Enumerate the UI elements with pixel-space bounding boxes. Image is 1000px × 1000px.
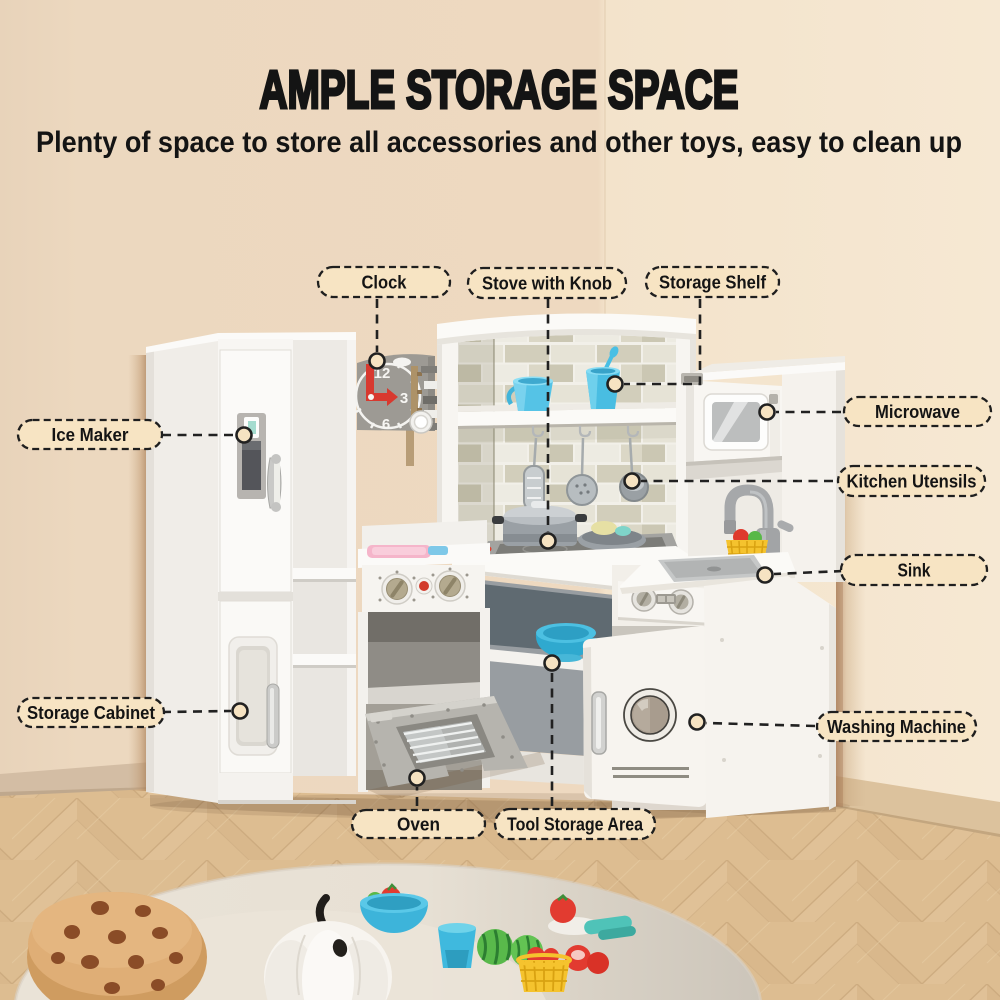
svg-text:Storage Shelf: Storage Shelf	[659, 272, 767, 293]
svg-text:Storage Cabinet: Storage Cabinet	[27, 702, 155, 723]
svg-text:Microwave: Microwave	[875, 401, 960, 422]
svg-text:6: 6	[382, 416, 390, 433]
svg-text:Sink: Sink	[898, 560, 932, 581]
svg-text:Ice Maker: Ice Maker	[52, 424, 129, 445]
svg-text:Tool Storage Area: Tool Storage Area	[507, 814, 644, 835]
svg-text:3: 3	[400, 390, 408, 407]
svg-text:Plenty of space to store all a: Plenty of space to store all accessories…	[36, 126, 962, 159]
svg-text:Oven: Oven	[397, 814, 440, 835]
svg-text:Kitchen Utensils: Kitchen Utensils	[847, 471, 977, 492]
svg-text:Stove with Knob: Stove with Knob	[482, 273, 612, 294]
svg-text:Washing Machine: Washing Machine	[827, 716, 966, 737]
svg-text:AMPLE STORAGE SPACE: AMPLE STORAGE SPACE	[260, 60, 739, 120]
svg-text:Clock: Clock	[362, 272, 408, 293]
